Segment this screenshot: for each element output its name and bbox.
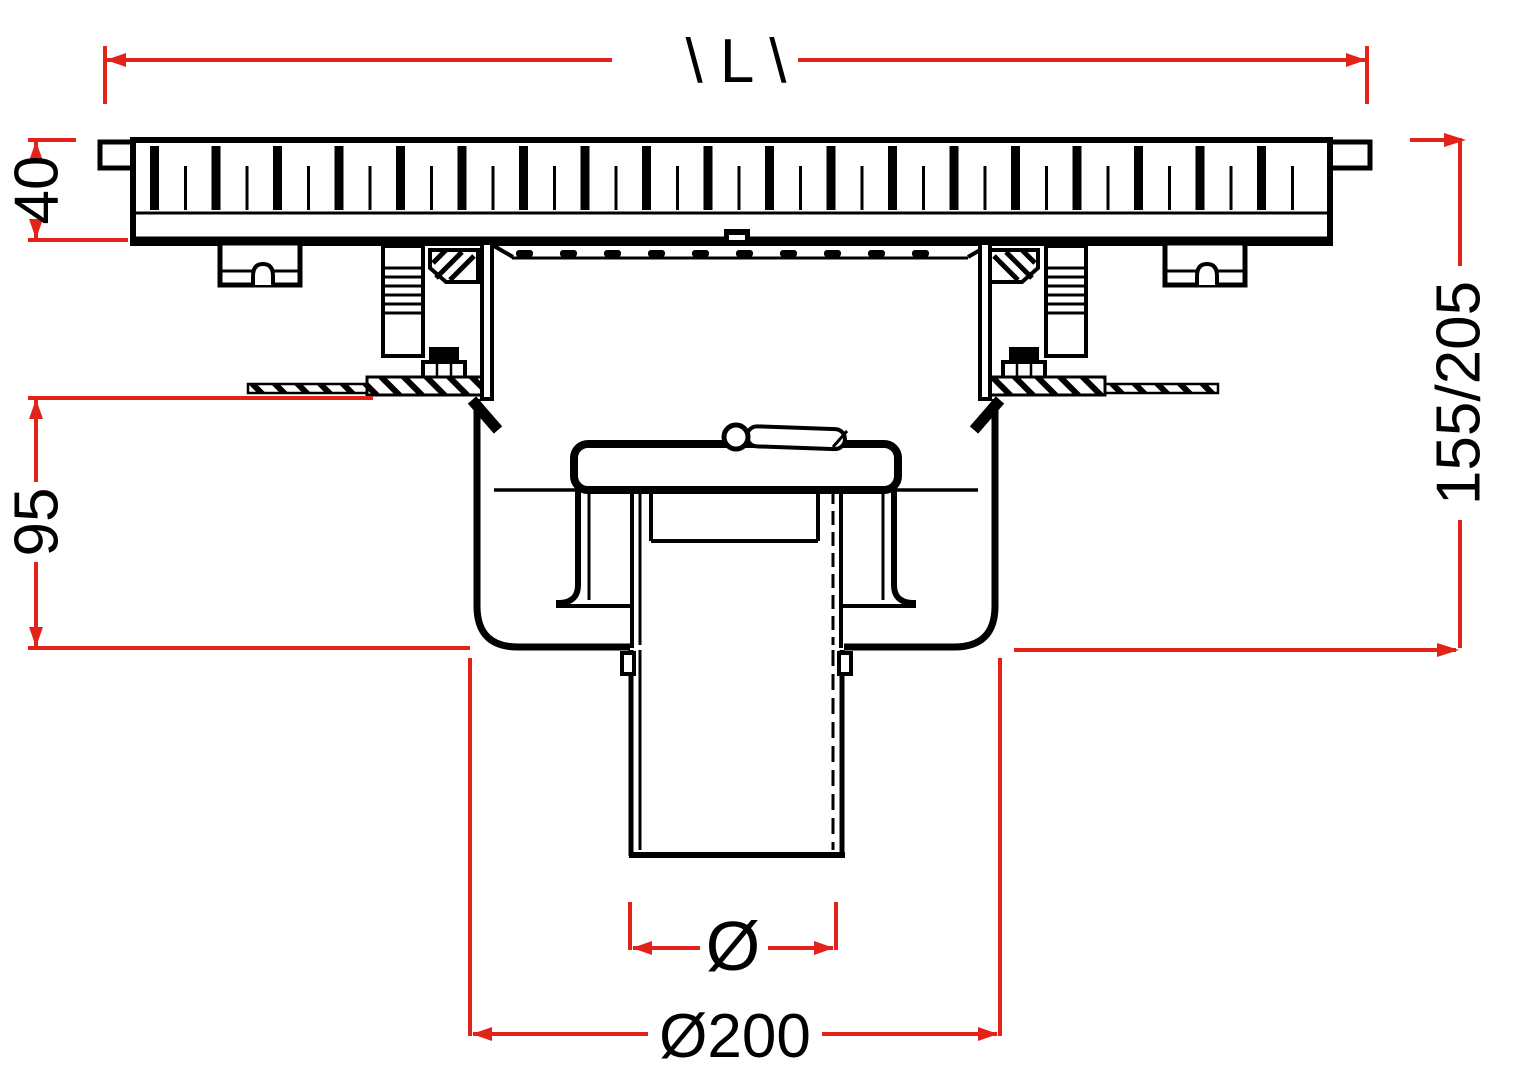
grate-right-tab bbox=[1330, 142, 1370, 168]
right-flange bbox=[986, 377, 1218, 395]
right-flange-plate bbox=[986, 377, 1105, 395]
bell-skirt-right bbox=[894, 489, 916, 603]
bell-inner-step bbox=[651, 490, 818, 541]
grate-height-label: 40 bbox=[3, 156, 72, 225]
flange-diameter-label: Ø200 bbox=[659, 1002, 811, 1071]
outlet-diameter-arrow-left bbox=[632, 941, 652, 955]
dimension-sump-depth bbox=[28, 398, 470, 648]
handle-bar bbox=[747, 426, 846, 449]
center-lock-tab-slot bbox=[729, 235, 745, 240]
sump-depth-arrow-bottom bbox=[29, 627, 43, 647]
outlet-diameter-label: Ø bbox=[706, 907, 760, 985]
siphon-bell bbox=[556, 444, 916, 648]
right-mounting-bracket bbox=[1165, 243, 1245, 285]
right-bracket-hole bbox=[1197, 264, 1217, 285]
right-flange-gasket bbox=[1098, 384, 1218, 393]
grate-left-tab bbox=[100, 142, 133, 168]
pipe-socket-lip-left bbox=[622, 653, 634, 674]
outlet-diameter-arrow-right bbox=[814, 941, 834, 955]
seal-chamfer-left bbox=[494, 246, 513, 257]
handle-knob bbox=[724, 425, 748, 449]
length-arrow-left bbox=[106, 53, 126, 67]
seal-serration bbox=[516, 249, 952, 258]
overall-height-arrow-top bbox=[1444, 133, 1466, 147]
flange-diameter-arrow-right bbox=[978, 1027, 998, 1041]
outlet-pipe bbox=[622, 650, 851, 856]
sump-bowl-left bbox=[477, 399, 630, 647]
right-clamp-wedge bbox=[990, 250, 1038, 282]
flange-diameter-arrow-left bbox=[472, 1027, 492, 1041]
left-mounting-bracket bbox=[220, 243, 300, 285]
riser-pipe bbox=[632, 490, 841, 648]
body-wall-left bbox=[482, 243, 492, 399]
left-clamp-wedge bbox=[430, 250, 478, 282]
length-arrow-right bbox=[1346, 53, 1366, 67]
sump-depth-label: 95 bbox=[3, 488, 72, 557]
right-adjustment-rod bbox=[1046, 246, 1086, 356]
grate-assembly bbox=[100, 140, 1370, 243]
sump-bowl-right bbox=[844, 399, 995, 647]
siphon-handle bbox=[724, 425, 847, 449]
left-flange-gasket bbox=[248, 384, 374, 393]
left-flange bbox=[248, 377, 486, 395]
left-flange-plate bbox=[367, 377, 486, 395]
technical-drawing-canvas: \ L \ 40 95 155/205 Ø Ø200 bbox=[0, 0, 1513, 1080]
overall-height-arrow-bottom bbox=[1437, 643, 1459, 657]
length-label: \ L \ bbox=[685, 27, 787, 96]
left-bracket-hole bbox=[253, 264, 273, 285]
technical-drawing-page: \ L \ 40 95 155/205 Ø Ø200 bbox=[0, 0, 1513, 1080]
pipe-socket-lip-right bbox=[839, 653, 851, 674]
body-wall-right bbox=[980, 243, 990, 399]
bell-skirt-left bbox=[556, 489, 578, 603]
left-adjustment-rod bbox=[383, 246, 423, 356]
sump-depth-arrow-top bbox=[29, 399, 43, 419]
overall-height-label: 155/205 bbox=[1425, 281, 1494, 505]
grate-bars bbox=[150, 146, 1318, 210]
